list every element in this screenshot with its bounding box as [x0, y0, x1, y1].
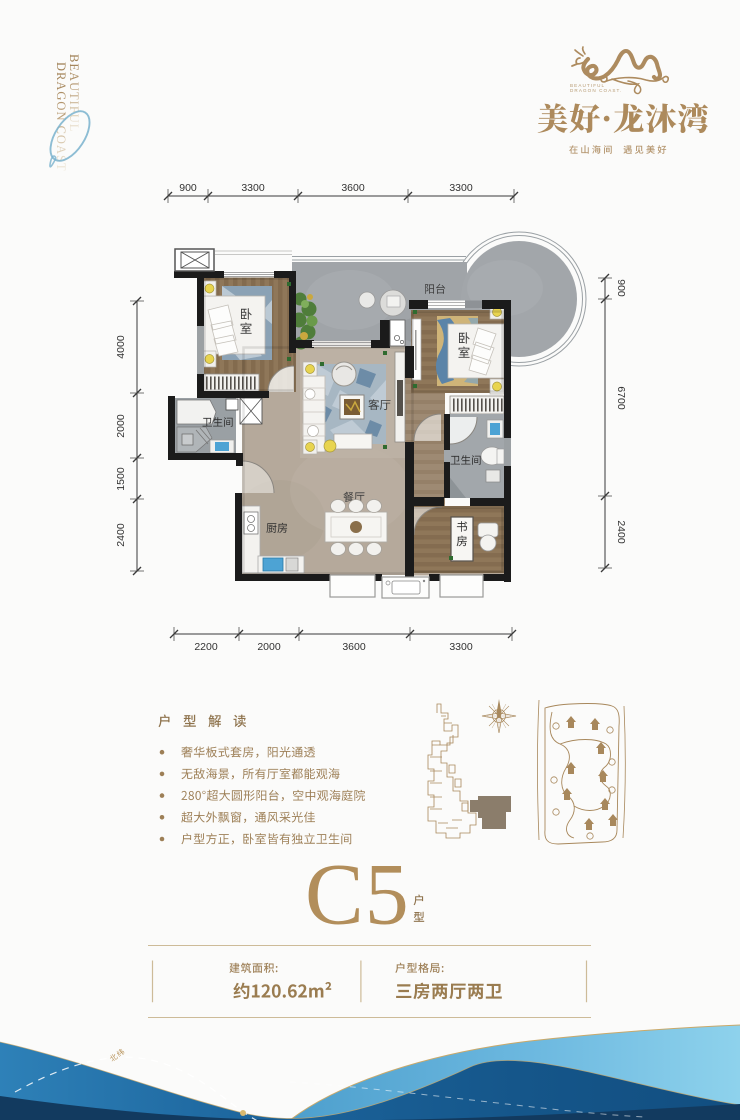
svg-text:900: 900	[615, 279, 627, 297]
svg-text:900: 900	[179, 182, 197, 194]
svg-text:3600: 3600	[341, 182, 365, 194]
svg-text:2000: 2000	[257, 641, 281, 653]
svg-text:6700: 6700	[615, 386, 627, 410]
svg-text:2400: 2400	[615, 520, 627, 544]
svg-text:1500: 1500	[115, 467, 127, 491]
svg-text:3300: 3300	[449, 641, 473, 653]
svg-text:2000: 2000	[115, 414, 127, 438]
svg-text:3300: 3300	[241, 182, 265, 194]
svg-text:3300: 3300	[449, 182, 473, 194]
svg-text:2400: 2400	[115, 523, 127, 547]
svg-text:C5: C5	[305, 847, 410, 944]
svg-text:4000: 4000	[115, 335, 127, 359]
svg-text:3600: 3600	[342, 641, 366, 653]
svg-text:2200: 2200	[194, 641, 218, 653]
